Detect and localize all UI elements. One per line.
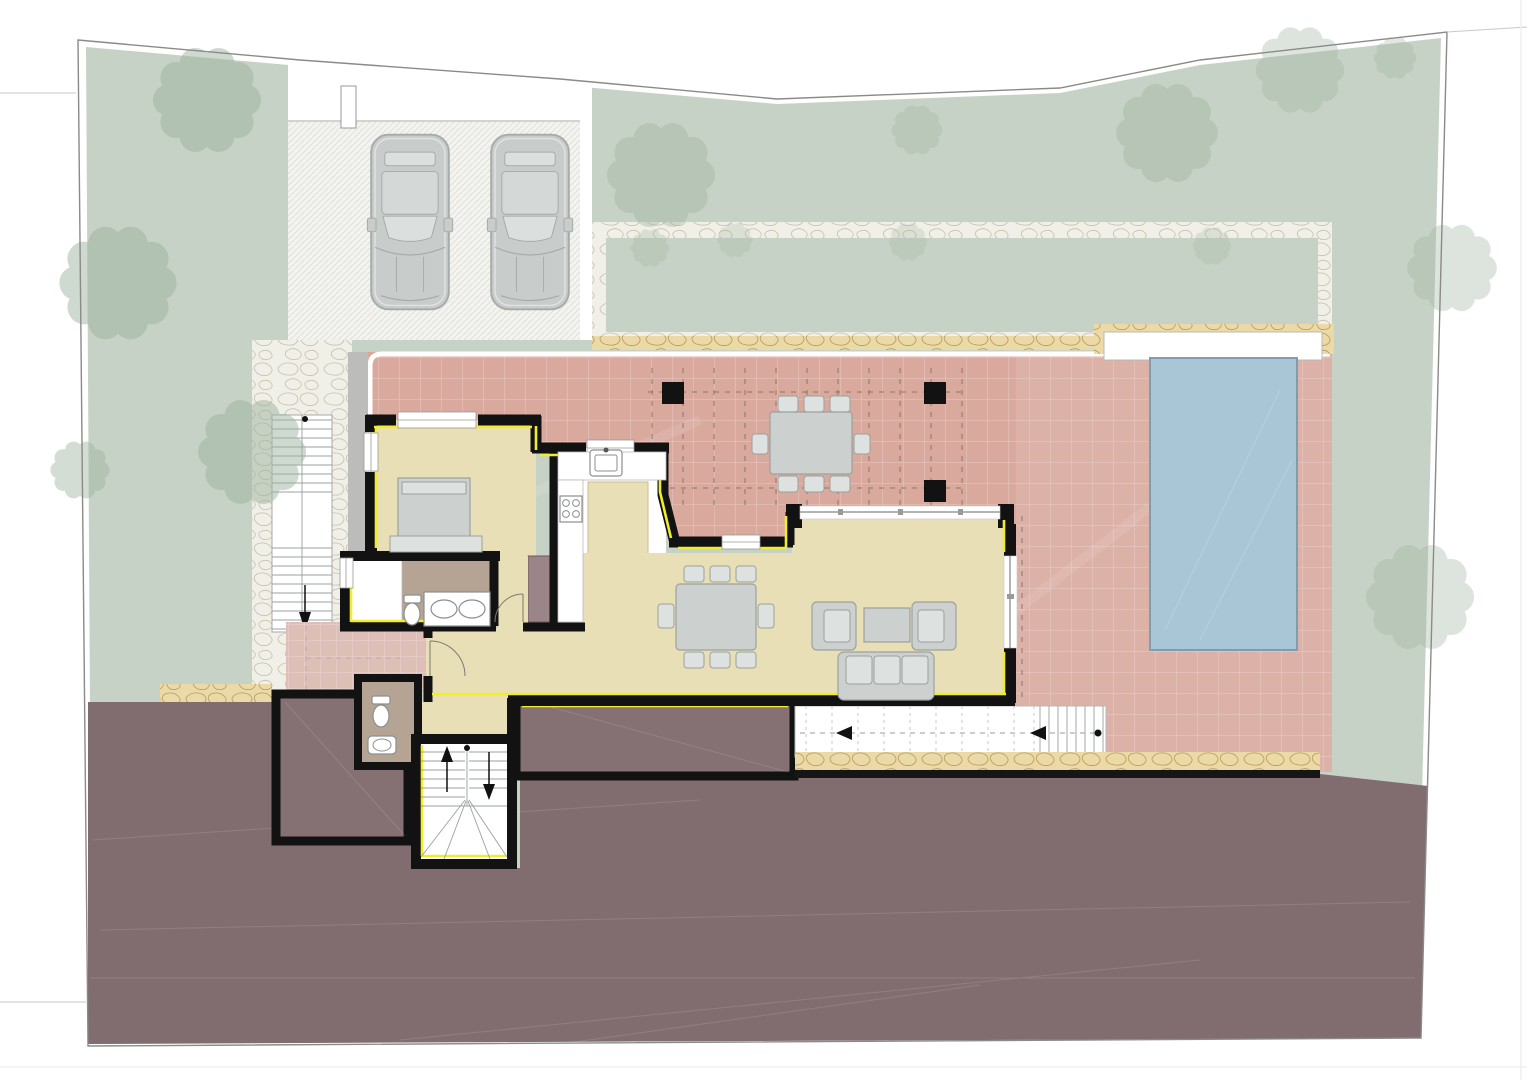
stove (560, 496, 582, 522)
outdoor-chair (804, 396, 824, 412)
pergola-post (924, 480, 946, 502)
tan-stone-texture (592, 336, 1100, 350)
dining-chair (710, 566, 730, 582)
armchair-seat (918, 610, 944, 642)
dining-chair (684, 652, 704, 668)
armchair-seat (824, 610, 850, 642)
dining-chair (684, 566, 704, 582)
toilet-tank (404, 595, 421, 603)
glass-curtain-wall (800, 506, 1000, 519)
outdoor-chair (778, 476, 798, 492)
dining-chair (710, 652, 730, 668)
retaining-band (795, 752, 1320, 778)
tree-icon (889, 223, 928, 260)
side-strip (580, 88, 592, 340)
window (398, 412, 476, 428)
car-top-view-icon (367, 135, 452, 310)
sofa-cushion (846, 656, 872, 684)
outdoor-dining-table (770, 412, 852, 474)
sofa-cushion (902, 656, 928, 684)
dining-floor-ext (554, 627, 583, 700)
tree-icon (153, 48, 261, 152)
outdoor-chair (830, 476, 850, 492)
tree-icon (1256, 27, 1345, 112)
toilet-bowl (373, 705, 389, 727)
pool-deck (1104, 332, 1322, 360)
kitchen-island (588, 482, 648, 556)
outdoor-chair (854, 434, 870, 454)
dining-chair (658, 604, 674, 628)
swimming-pool (1150, 358, 1297, 650)
right-exterior-stair (795, 706, 1106, 757)
tree-icon (59, 227, 176, 340)
outdoor-chair (778, 396, 798, 412)
window (340, 558, 353, 588)
tree-icon (1366, 545, 1474, 649)
outdoor-chair (752, 434, 768, 454)
stair-start-dot (464, 745, 470, 751)
bedroom-furniture (390, 478, 482, 552)
wardrobe (528, 556, 550, 622)
stair-start-dot (1095, 730, 1102, 737)
window (722, 535, 760, 549)
tree-icon (1374, 37, 1417, 78)
stair-start-dot (302, 416, 308, 422)
tan-stone-band-left-texture (160, 684, 272, 702)
gate-pillar (341, 86, 356, 128)
dining-chair (758, 604, 774, 628)
outdoor-chair (830, 396, 850, 412)
sliding-glass-door (1004, 556, 1017, 648)
bed-pillows (402, 482, 466, 494)
pergola-post (924, 382, 946, 404)
tree-icon (892, 106, 943, 155)
pergola-post (662, 382, 684, 404)
coffee-table (864, 608, 910, 642)
car-top-view-icon (487, 135, 572, 310)
window (364, 433, 378, 471)
tree-icon (717, 223, 753, 257)
bathroom-fixtures (404, 592, 490, 626)
driveway-approach (288, 50, 592, 122)
dining-table (676, 584, 756, 650)
site-plan-drawing (0, 0, 1527, 1080)
tree-icon (1116, 84, 1218, 182)
tree-icon (631, 229, 670, 266)
hall-floor (426, 628, 554, 700)
tree-icon (1407, 225, 1497, 311)
bed-bench (390, 536, 482, 552)
faucet (604, 448, 609, 453)
outdoor-chair (804, 476, 824, 492)
dining-chair (736, 652, 756, 668)
dining-chair (736, 566, 756, 582)
tree-icon (198, 400, 306, 504)
floor-plan-canvas (0, 0, 1527, 1080)
tree-icon (50, 442, 109, 499)
tree-icon (607, 123, 715, 227)
toilet-tank (372, 696, 390, 704)
tree-icon (1193, 227, 1232, 264)
toilet-bowl (404, 603, 420, 625)
sofa-cushion (874, 656, 900, 684)
shower-area (350, 559, 402, 624)
